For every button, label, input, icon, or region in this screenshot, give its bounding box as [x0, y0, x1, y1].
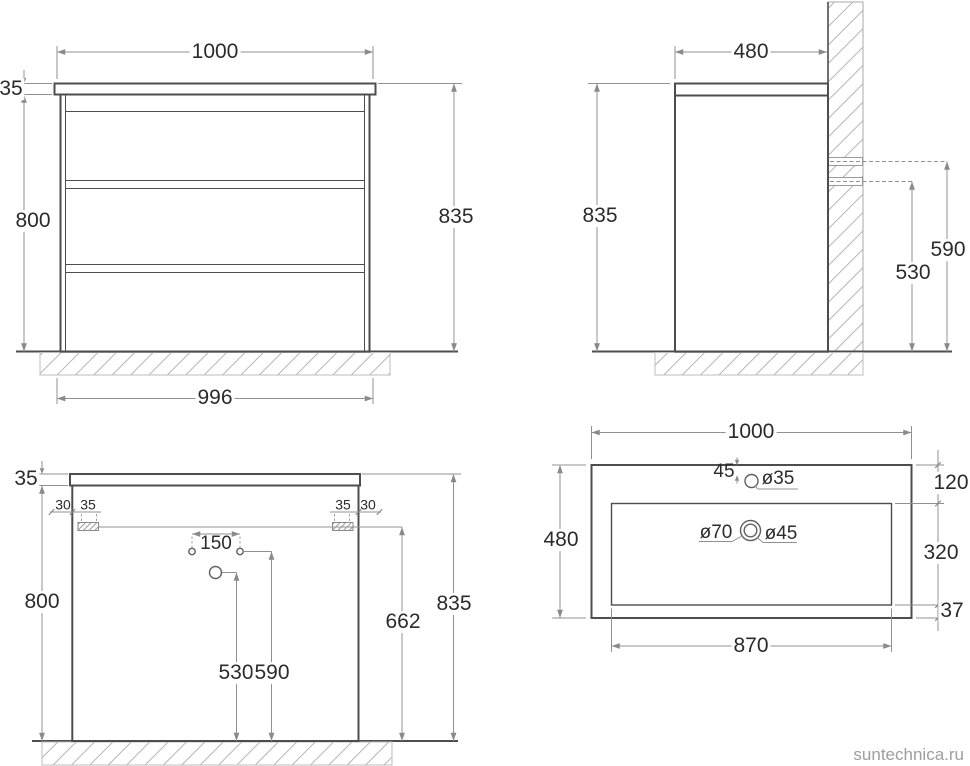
dim-rear-bracket-right: 35: [334, 498, 352, 513]
drain-hole: [210, 567, 222, 579]
dim-front-body-height: 800: [13, 210, 52, 232]
wall-bracket-left: [78, 523, 99, 531]
dim-rear-hole-spacing: 150: [199, 534, 233, 554]
dim-side-depth: 480: [731, 41, 770, 63]
supply-hole-left: [189, 548, 195, 554]
dim-sink-basin-depth: 320: [921, 542, 960, 564]
dim-sink-front-margin: 37: [938, 600, 965, 622]
dim-sink-depth: 480: [541, 529, 580, 551]
dim-sink-drain-outer: ø70: [699, 523, 734, 543]
front-view-drawing: [16, 46, 462, 404]
side-countertop: [675, 84, 828, 96]
dim-rear-offset-left: 30: [54, 498, 72, 513]
dim-rear-offset-right: 30: [359, 498, 377, 513]
drain-inner-circle: [744, 524, 757, 537]
dim-sink-back-margin: 120: [931, 472, 970, 494]
technical-drawing-canvas: 1000 35 800 835 996 480 835 590 530 35 3…: [0, 0, 970, 766]
front-cabinet-body: [61, 95, 370, 352]
side-floor-hatch: [655, 353, 863, 376]
dim-rear-bracket-height: 662: [383, 611, 422, 633]
dim-rear-overall-height: 835: [434, 593, 473, 615]
side-cabinet-body: [675, 96, 828, 352]
drawing-linework: [0, 0, 970, 766]
dim-side-lower-rail: 530: [893, 262, 932, 284]
dim-side-overall-height: 835: [580, 205, 619, 227]
wall-bracket-right: [333, 523, 354, 531]
dim-sink-faucet-offset: 45: [712, 462, 735, 482]
dim-front-base-width: 996: [195, 387, 234, 409]
sink-top-view-drawing: [552, 426, 944, 652]
dim-sink-drain-inner: ø45: [764, 524, 799, 544]
wall-hatch: [828, 2, 863, 352]
dim-sink-basin-width: 870: [731, 635, 770, 657]
dim-front-overall-height: 835: [436, 206, 475, 228]
rear-countertop: [70, 474, 360, 486]
supply-hole-right: [237, 548, 243, 554]
dim-sink-width: 1000: [726, 421, 777, 443]
front-floor-hatch: [40, 353, 390, 376]
watermark: suntechnica.ru: [851, 746, 966, 764]
rear-cabinet-body: [72, 486, 358, 742]
faucet-hole: [745, 475, 758, 488]
dim-rear-drain-height: 530: [216, 662, 255, 684]
dim-side-upper-rail: 590: [928, 239, 967, 261]
dim-front-top-width: 1000: [190, 41, 241, 63]
dim-rear-body-height: 800: [22, 591, 61, 613]
front-countertop: [55, 84, 376, 95]
dim-rear-bracket-left: 35: [79, 498, 97, 513]
dim-rear-countertop: 35: [12, 468, 39, 490]
rear-floor-hatch: [42, 742, 392, 765]
dim-sink-faucet-dia: ø35: [761, 469, 796, 489]
dim-front-countertop: 35: [0, 78, 25, 100]
dim-rear-supply-height: 590: [252, 662, 291, 684]
